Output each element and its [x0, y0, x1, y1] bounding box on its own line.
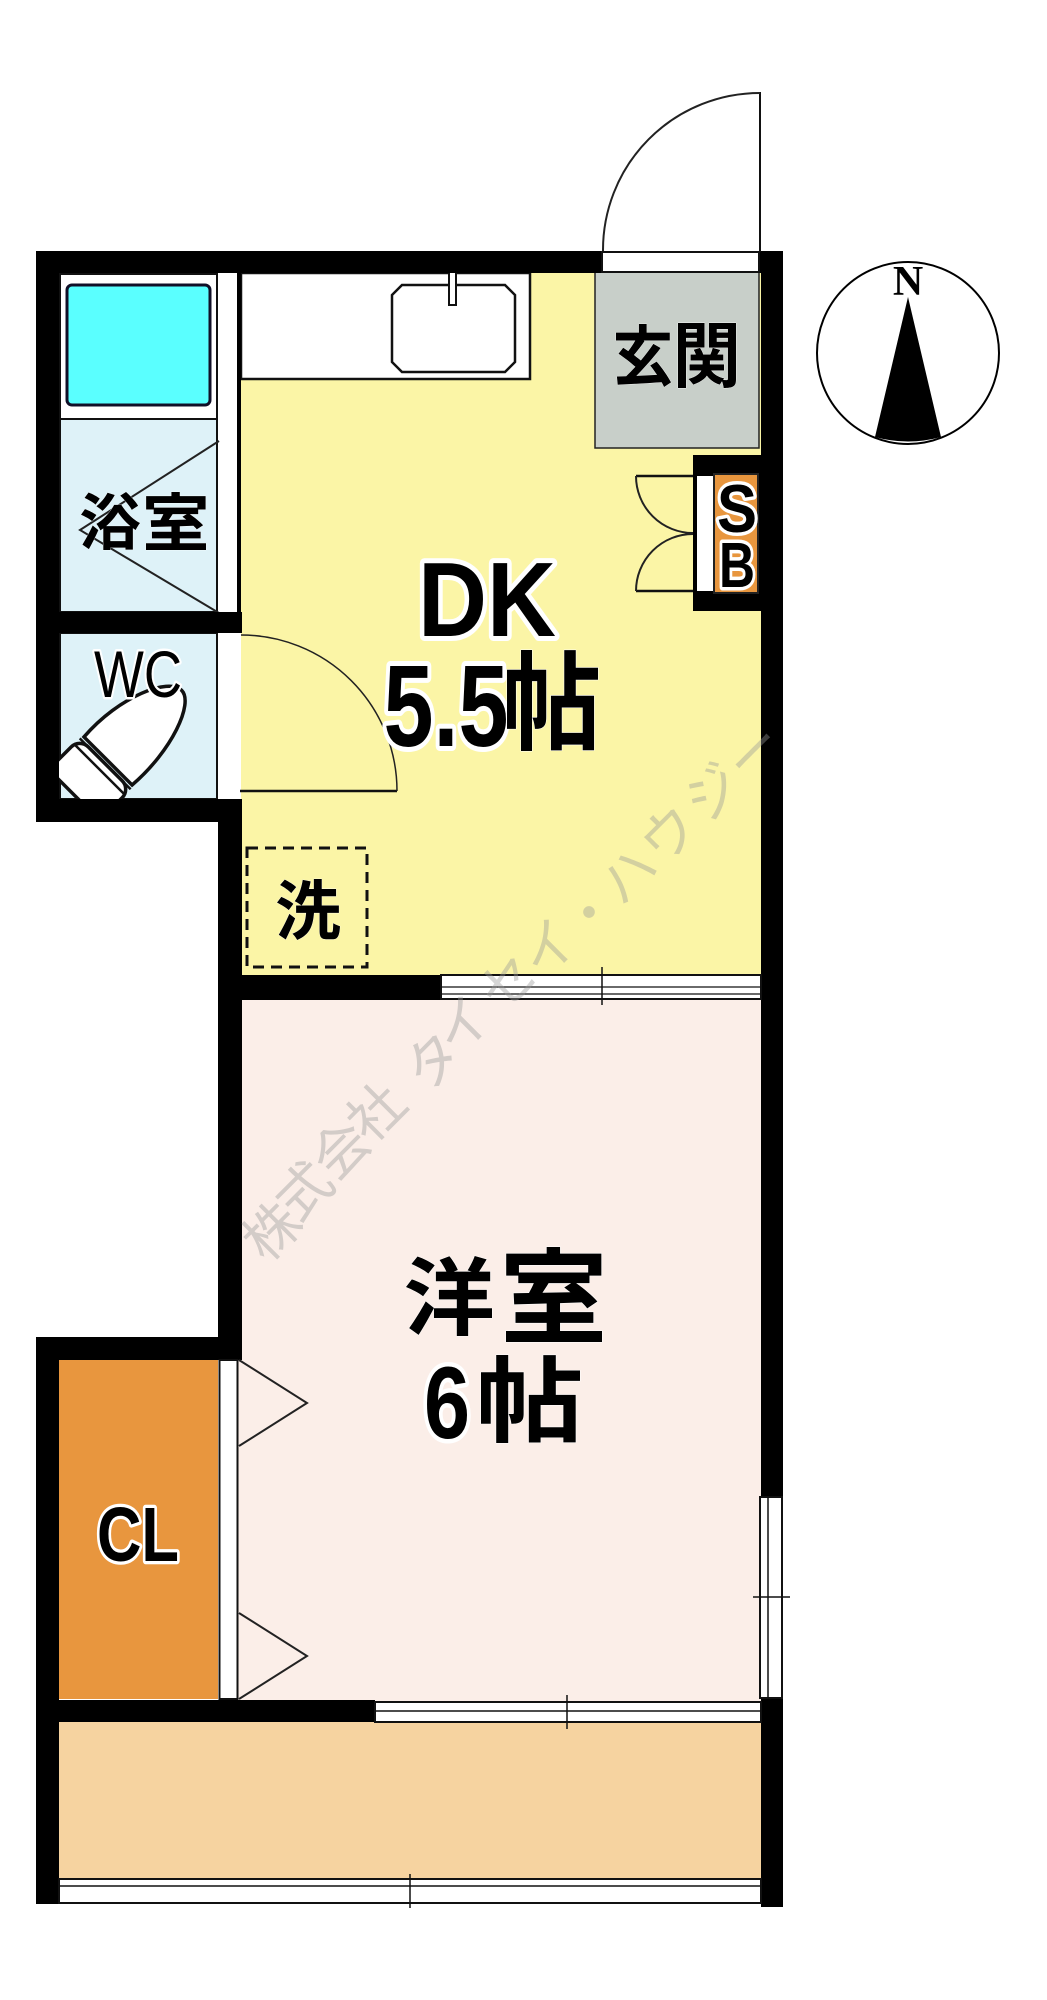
svg-text:5.5: 5.5 — [384, 641, 509, 771]
svg-text:N: N — [893, 259, 923, 305]
svg-text:WC: WC — [94, 637, 182, 711]
svg-text:B: B — [719, 529, 755, 601]
svg-text:CL: CL — [97, 1492, 179, 1578]
svg-text:6: 6 — [424, 1346, 470, 1460]
